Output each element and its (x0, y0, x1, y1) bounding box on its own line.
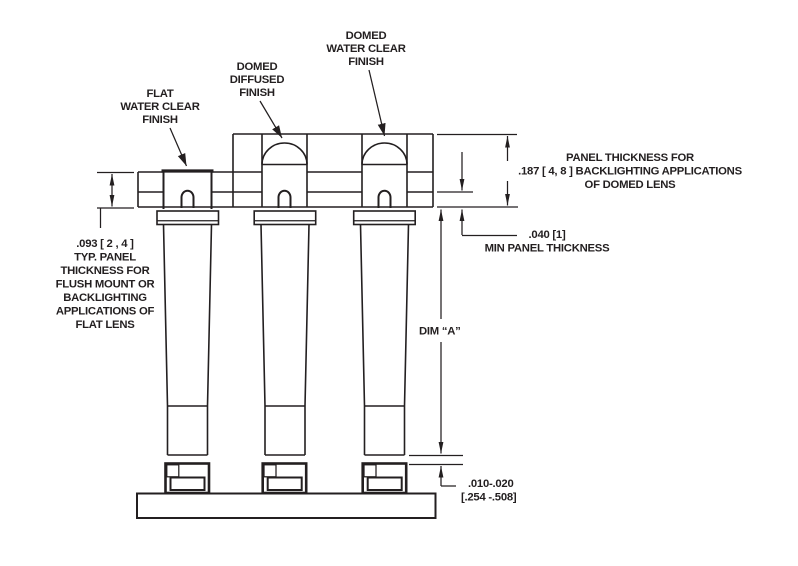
extension-lines (409, 456, 463, 465)
note-line: PANEL THICKNESS FOR (566, 152, 694, 164)
callout-domed-diffused: DOMED DIFFUSED FINISH (230, 61, 285, 99)
led-bullet (279, 191, 291, 208)
technical-drawing: DOMED WATER CLEAR FINISH DOMED DIFFUSED … (0, 0, 798, 566)
led-notch (264, 465, 276, 477)
led-package-right (363, 464, 407, 494)
dim-min-panel-thickness (462, 152, 517, 236)
stem (261, 225, 309, 456)
note-line: [.254 -.508] (461, 492, 517, 504)
note-line: TYP. PANEL (74, 252, 136, 264)
callout-line: DOMED (346, 30, 387, 42)
note-line: .040 [1] (529, 229, 566, 241)
flat-lens-indicator (157, 171, 219, 455)
callout-line: WATER CLEAR (120, 101, 199, 113)
dim-a-label: DIM “A” (419, 326, 461, 338)
flat-lens-leader (170, 128, 187, 166)
note-line: OF DOMED LENS (585, 179, 677, 191)
note-line: .093 [ 2 , 4 ] (76, 238, 134, 250)
led-bullet (379, 191, 391, 208)
extension-lines (97, 173, 134, 209)
dome (362, 143, 407, 165)
note-line: .010-.020 (468, 478, 514, 490)
note-line: FLUSH MOUNT OR (56, 279, 155, 291)
domed-clear-indicator (354, 143, 416, 455)
extension-lines (437, 135, 518, 208)
note-line: THICKNESS FOR (60, 265, 149, 277)
drawing-canvas: DOMED WATER CLEAR FINISH DOMED DIFFUSED … (0, 0, 798, 566)
led-window (171, 478, 205, 491)
note-min-panel-thickness: .040 [1] MIN PANEL THICKNESS (485, 229, 610, 255)
led-package-left (166, 464, 210, 494)
clear-lens-leader (369, 70, 385, 136)
note-line: FLAT LENS (75, 319, 135, 331)
callout-line: FLAT (146, 88, 173, 100)
flange (157, 211, 219, 225)
note-line: MIN PANEL THICKNESS (485, 243, 610, 255)
dim-led-gap (409, 456, 463, 487)
callout-domed-water-clear: DOMED WATER CLEAR FINISH (326, 30, 405, 68)
pcb (137, 494, 436, 519)
callout-line: DIFFUSED (230, 74, 285, 86)
led-bullet (182, 191, 194, 208)
flange (354, 211, 416, 225)
callout-line: FINISH (142, 114, 178, 126)
flange (254, 211, 316, 225)
dim-flat-panel-thickness (97, 173, 134, 229)
note-line: BACKLIGHTING (63, 292, 147, 304)
led-window (368, 478, 402, 491)
dome (262, 143, 307, 165)
led-package-middle (263, 464, 307, 494)
stem (361, 225, 409, 456)
callout-line: FINISH (348, 56, 384, 68)
note-line: APPLICATIONS OF (56, 306, 155, 318)
dim-domed-panel-thickness (437, 135, 518, 208)
led-notch (364, 465, 376, 477)
note-domed-panel-thickness: PANEL THICKNESS FOR .187 [ 4, 8 ] BACKLI… (518, 152, 742, 191)
diffused-lens-leader (260, 101, 282, 138)
callout-line: WATER CLEAR (326, 43, 405, 55)
stem (164, 225, 212, 456)
note-led-gap: .010-.020 [.254 -.508] (461, 478, 517, 504)
callout-line: DOMED (237, 61, 278, 73)
led-window (268, 478, 302, 491)
led-notch (167, 465, 179, 477)
callout-flat-water-clear: FLAT WATER CLEAR FINISH (120, 88, 199, 126)
note-flat-panel-thickness: .093 [ 2 , 4 ] TYP. PANEL THICKNESS FOR … (56, 238, 155, 331)
note-line: .187 [ 4, 8 ] BACKLIGHTING APPLICATIONS (518, 166, 742, 178)
callout-line: FINISH (239, 87, 275, 99)
